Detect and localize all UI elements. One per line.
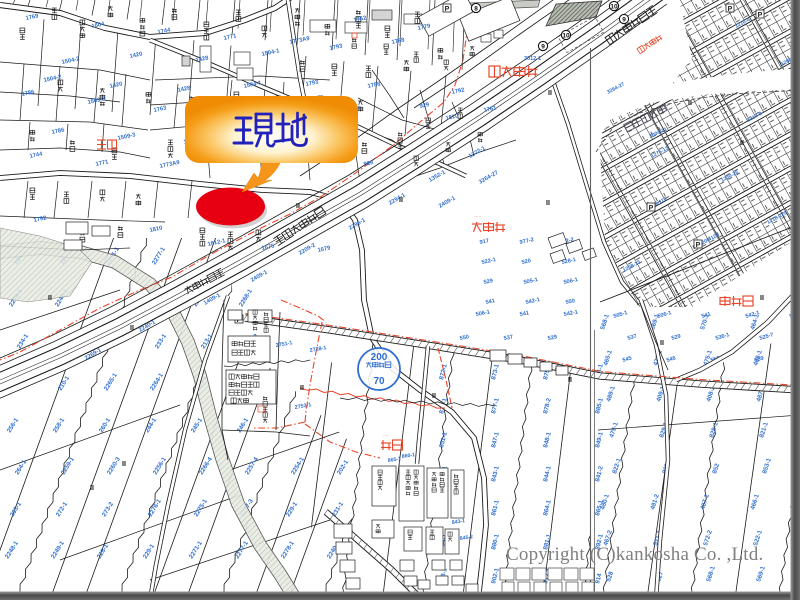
svg-text:·····: ····· <box>492 58 500 63</box>
svg-text:II: II <box>122 461 126 468</box>
svg-text:P: P <box>649 205 654 212</box>
svg-text:9: 9 <box>541 43 545 50</box>
svg-text:II: II <box>546 200 550 207</box>
svg-text:Copyright (C)kankosha Co. ,Ltd: Copyright (C)kankosha Co. ,Ltd. <box>506 544 763 565</box>
svg-text:3012-1: 3012-1 <box>524 56 541 62</box>
svg-text:8: 8 <box>474 5 478 12</box>
svg-text:P: P <box>758 12 763 19</box>
svg-text:II: II <box>660 340 664 347</box>
svg-text:·····: ····· <box>474 214 482 219</box>
svg-text:10: 10 <box>562 32 570 39</box>
svg-text:II: II <box>740 140 744 147</box>
svg-text:II: II <box>48 295 52 302</box>
svg-text:70: 70 <box>373 376 385 387</box>
svg-text:····: ···· <box>98 134 104 139</box>
svg-text:200: 200 <box>371 352 388 363</box>
svg-text:10: 10 <box>610 3 618 10</box>
svg-text:II: II <box>568 377 572 384</box>
svg-text:9: 9 <box>622 16 626 23</box>
svg-text:II: II <box>90 485 94 492</box>
svg-text:II: II <box>432 393 436 400</box>
svg-text:II: II <box>688 100 692 107</box>
svg-text:II: II <box>548 90 552 97</box>
svg-text:P: P <box>728 6 733 13</box>
svg-text:P: P <box>696 242 701 249</box>
svg-text:II: II <box>300 385 304 392</box>
svg-text:····: ···· <box>383 433 389 438</box>
svg-text:II: II <box>760 295 764 302</box>
svg-text:II: II <box>130 325 134 332</box>
svg-text:P: P <box>445 6 450 13</box>
svg-text:II: II <box>399 197 403 204</box>
svg-text:II: II <box>296 203 300 210</box>
svg-text:·····: ····· <box>722 288 730 293</box>
